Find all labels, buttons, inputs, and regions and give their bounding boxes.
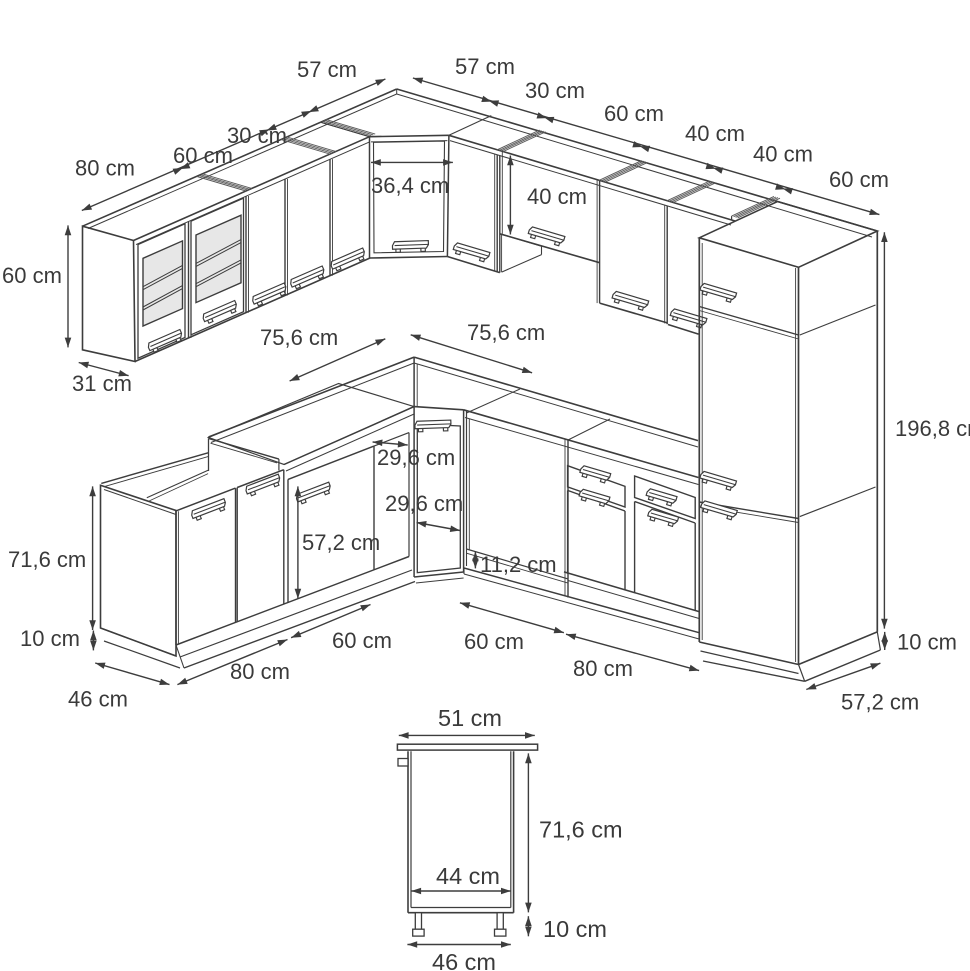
svg-text:36,4 cm: 36,4 cm — [371, 173, 449, 198]
svg-text:40 cm: 40 cm — [753, 142, 813, 167]
svg-text:71,6 cm: 71,6 cm — [8, 547, 86, 572]
svg-text:60 cm: 60 cm — [829, 167, 889, 192]
svg-text:40 cm: 40 cm — [527, 184, 587, 209]
svg-text:10 cm: 10 cm — [543, 916, 607, 942]
svg-text:75,6 cm: 75,6 cm — [467, 320, 545, 345]
svg-text:46 cm: 46 cm — [432, 949, 496, 971]
svg-text:30 cm: 30 cm — [227, 123, 287, 148]
svg-text:10 cm: 10 cm — [897, 630, 957, 655]
svg-text:30 cm: 30 cm — [525, 78, 585, 103]
svg-text:60 cm: 60 cm — [332, 628, 392, 653]
svg-text:75,6 cm: 75,6 cm — [260, 325, 338, 350]
svg-text:196,8 cm: 196,8 cm — [895, 416, 970, 441]
svg-text:57,2 cm: 57,2 cm — [841, 690, 919, 715]
svg-text:40 cm: 40 cm — [685, 121, 745, 146]
svg-text:60 cm: 60 cm — [173, 143, 233, 168]
svg-text:10 cm: 10 cm — [20, 626, 80, 651]
svg-text:60 cm: 60 cm — [2, 263, 62, 288]
svg-text:80 cm: 80 cm — [75, 156, 135, 181]
svg-text:60 cm: 60 cm — [604, 101, 664, 126]
svg-text:60 cm: 60 cm — [464, 629, 524, 654]
svg-text:80 cm: 80 cm — [573, 656, 633, 681]
svg-text:71,6 cm: 71,6 cm — [539, 817, 623, 843]
svg-text:57 cm: 57 cm — [297, 57, 357, 82]
svg-text:46 cm: 46 cm — [68, 687, 128, 712]
svg-text:29,6 cm: 29,6 cm — [385, 491, 463, 516]
svg-text:44 cm: 44 cm — [436, 863, 500, 889]
svg-text:51 cm: 51 cm — [438, 705, 502, 731]
svg-text:57,2 cm: 57,2 cm — [302, 530, 380, 555]
svg-text:29,6 cm: 29,6 cm — [377, 445, 455, 470]
svg-text:57 cm: 57 cm — [455, 54, 515, 79]
svg-text:11,2 cm: 11,2 cm — [480, 552, 557, 577]
svg-text:80 cm: 80 cm — [230, 659, 290, 684]
svg-text:31 cm: 31 cm — [72, 371, 132, 396]
